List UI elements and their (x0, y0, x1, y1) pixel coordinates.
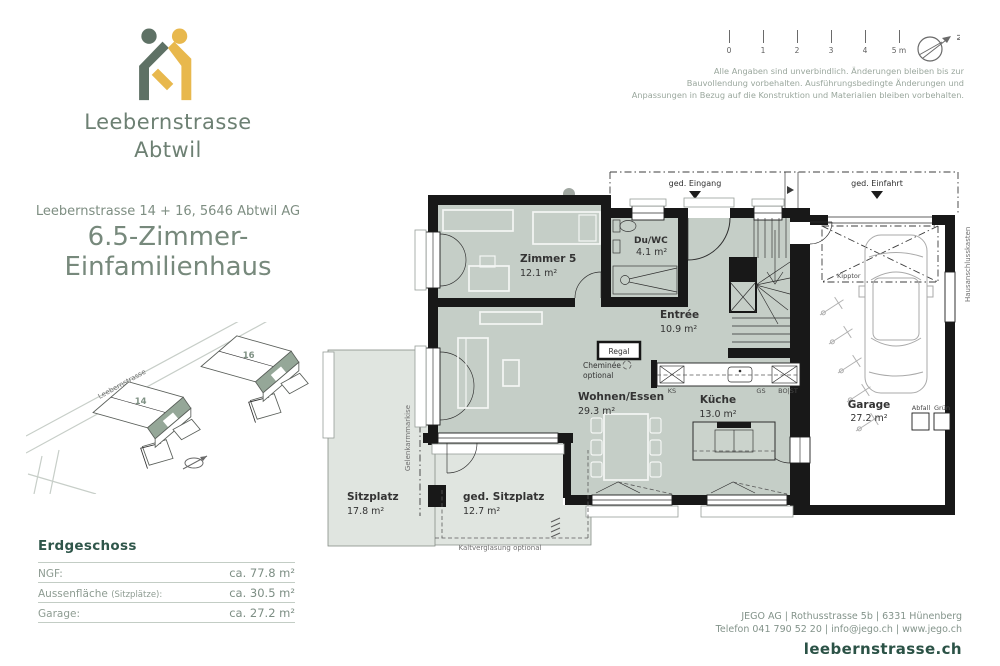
scale-tick: 1 (746, 30, 780, 55)
scale-tick-label: 2 (795, 46, 800, 55)
abfall-label: Abfall (912, 404, 931, 412)
zimmer5-name: Zimmer 5 (520, 253, 576, 265)
ged-sitzplatz-area: 12.7 m² (463, 506, 500, 517)
scale-tick-label: 4 (863, 46, 868, 55)
footer-contact-line1: JEGO AG | Rothusstrasse 5b | 6331 Hünenb… (716, 610, 962, 623)
scale-tick-label: 0 (727, 46, 732, 55)
project-title: 6.5-Zimmer- Einfamilienhaus (10, 222, 326, 282)
bost-label: BO|ST (778, 387, 798, 395)
north-letter: N (954, 34, 960, 41)
site-compass-icon (183, 456, 207, 469)
disclaimer-line: Bauvollendung vorbehalten. Ausführungsbe… (624, 78, 964, 90)
sitzplatz-name: Sitzplatz (347, 491, 399, 503)
row-value: ca. 27.2 m² (229, 606, 295, 620)
zimmer5-area: 12.1 m² (520, 268, 557, 279)
brand-line1: Leebernstrasse (10, 108, 326, 136)
gs-label: GS (756, 387, 765, 395)
duwc-area: 4.1 m² (636, 247, 667, 258)
footer-contact-line2: Telefon 041 790 52 20 | info@jego.ch | w… (716, 623, 962, 636)
kipptor-label: Kipptor (837, 272, 861, 280)
garage-area: 27.2 m² (850, 413, 887, 424)
scale-bar: 0 1 2 3 4 5 m (712, 30, 916, 55)
ks-label: KS (668, 387, 676, 395)
kueche-area: 13.0 m² (699, 409, 736, 420)
project-title-line2: Einfamilienhaus (10, 252, 326, 282)
house-16-label: 16 (243, 351, 255, 361)
ged-sitzplatz-name: ged. Sitzplatz (463, 491, 544, 503)
floor-heading: Erdgeschoss (38, 538, 295, 554)
disclaimer-line: Anpassungen in Bezug auf die Konstruktio… (624, 90, 964, 102)
cheminee-opt-label: optional (583, 371, 613, 380)
regal-label: Regal (609, 347, 630, 356)
einfahrt-arrow-icon (871, 191, 883, 199)
row-label: NGF: (38, 568, 63, 580)
regal-box: Regal (598, 342, 640, 359)
ged-einfahrt-label: ged. Einfahrt (851, 179, 903, 188)
scale-tick-label: 3 (829, 46, 834, 55)
site-plan: Leebernstrasse 16 14 (26, 322, 318, 494)
entree-name: Entrée (660, 309, 699, 321)
markise-label: Gelenkarmmarkise (404, 405, 412, 471)
scale-tick: 0 (712, 30, 746, 55)
floor-plan: Gelenkarmmarkise ged. Eingang ged. Einfa… (320, 160, 1000, 575)
kaltverglasung-label: Kaltverglasung optional (459, 544, 542, 552)
house-14-label: 14 (135, 397, 147, 407)
row-value: ca. 77.8 m² (229, 566, 295, 580)
scale-tick: 4 (848, 30, 882, 55)
duwc-name: Du/WC (634, 236, 668, 246)
hak-label: Hausanschlusskasten (964, 227, 972, 302)
floor-row: NGF: ca. 77.8 m² (38, 562, 295, 582)
footer: JEGO AG | Rothusstrasse 5b | 6331 Hünenb… (716, 610, 962, 658)
scale-tick: 5 m (882, 30, 916, 55)
disclaimer-line: Alle Angaben sind unverbindlich. Änderun… (624, 66, 964, 78)
row-note: (Sitzplätze): (111, 590, 162, 600)
row-label: Aussenfläche (38, 588, 108, 600)
floorplan-page: Leebernstrasse Abtwil 0 1 2 3 4 5 m N Al… (0, 0, 1000, 666)
wohnen-area: 29.3 m² (578, 406, 615, 417)
entree-area: 10.9 m² (660, 324, 697, 335)
sitzplatz-area: 17.8 m² (347, 506, 384, 517)
north-arrow-icon: N (912, 27, 960, 69)
hak-box (945, 272, 955, 322)
kueche-name: Küche (700, 394, 736, 406)
planter (323, 352, 334, 438)
kitchen-island (693, 422, 775, 460)
brand-logo-icon (122, 26, 212, 104)
scale-tick-label: 5 m (892, 46, 906, 55)
scale-tick: 3 (814, 30, 848, 55)
scale-tick-label: 1 (761, 46, 766, 55)
floor-row: Garage: ca. 27.2 m² (38, 602, 295, 623)
ged-eingang-label: ged. Eingang (669, 179, 722, 188)
gruen-label: Grün (934, 404, 950, 412)
wohnen-name: Wohnen/Essen (578, 391, 664, 403)
garage-bins: Abfall Grün (912, 404, 950, 430)
project-title-line1: 6.5-Zimmer- (10, 222, 326, 252)
brand-line2: Abtwil (10, 136, 326, 164)
garage-name: Garage (848, 399, 891, 411)
cheminee-label: Cheminée (583, 361, 621, 370)
floor-table: Erdgeschoss NGF: ca. 77.8 m² Aussenfläch… (38, 538, 295, 623)
scale-tick: 2 (780, 30, 814, 55)
footer-website: leebernstrasse.ch (716, 640, 962, 658)
project-address: Leebernstrasse 14 + 16, 5646 Abtwil AG (10, 204, 326, 219)
disclaimer: Alle Angaben sind unverbindlich. Änderun… (624, 66, 964, 101)
row-label: Garage: (38, 608, 80, 620)
brand-name: Leebernstrasse Abtwil (10, 108, 326, 164)
floor-row: Aussenfläche (Sitzplätze): ca. 30.5 m² (38, 582, 295, 602)
row-value: ca. 30.5 m² (229, 586, 295, 600)
